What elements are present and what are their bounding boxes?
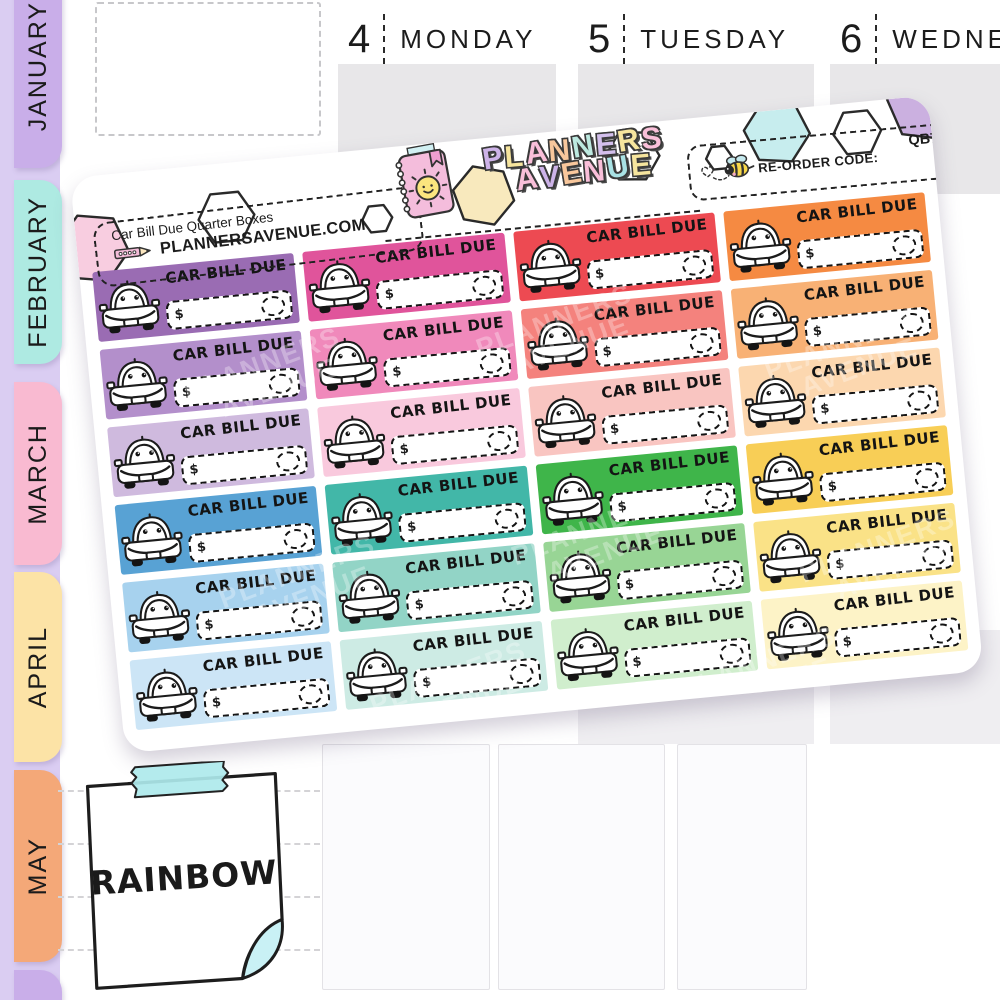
dollar-sign: $ xyxy=(189,462,199,478)
car-icon xyxy=(314,331,381,395)
sticker-car-bill-due: CAR BILL DUE$ xyxy=(325,466,533,555)
sticker-car-bill-due: CAR BILL DUE$ xyxy=(520,290,728,379)
sticker-car-bill-due: CAR BILL DUE$ xyxy=(115,486,323,575)
day-number: 4 xyxy=(348,17,370,62)
dollar-sign: $ xyxy=(384,287,394,303)
day-name: TUESDAY xyxy=(640,24,789,55)
tab-label: JANUARY xyxy=(24,1,53,131)
amount-box: $ xyxy=(616,559,744,600)
dashed-circle xyxy=(261,295,287,317)
notes-dashed-box xyxy=(95,2,321,136)
dashed-circle xyxy=(891,234,917,256)
dashed-circle xyxy=(486,430,512,452)
sticker-title: CAR BILL DUE xyxy=(175,410,306,443)
car-icon xyxy=(539,466,606,530)
sticker-title: CAR BILL DUE xyxy=(596,370,727,403)
car-icon xyxy=(749,446,816,510)
pencil-icon xyxy=(113,244,154,262)
sticker-car-bill-due: CAR BILL DUE$ xyxy=(340,621,548,710)
car-icon xyxy=(764,602,831,666)
amount-box: $ xyxy=(796,229,924,270)
dashed-circle xyxy=(501,585,527,607)
dashed-circle xyxy=(704,487,730,509)
dollar-sign: $ xyxy=(196,540,206,556)
sticker-car-bill-due: CAR BILL DUE$ xyxy=(738,347,946,436)
amount-box: $ xyxy=(188,522,316,563)
sticker-title: CAR BILL DUE xyxy=(603,448,734,481)
sticker-car-bill-due: CAR BILL DUE$ xyxy=(745,425,953,514)
amount-box: $ xyxy=(405,580,533,621)
dollar-sign: $ xyxy=(827,479,837,495)
day-section-box xyxy=(498,744,665,990)
logo-letter: U xyxy=(603,149,632,186)
sticker-car-bill-due: CAR BILL DUE$ xyxy=(310,310,518,399)
dollar-sign: $ xyxy=(392,364,402,380)
dashed-circle xyxy=(681,254,707,276)
dollar-sign: $ xyxy=(174,307,184,323)
sticker-title: CAR BILL DUE xyxy=(618,603,749,636)
car-icon xyxy=(516,234,583,298)
sticker-title: CAR BILL DUE xyxy=(197,643,328,676)
dashed-circle xyxy=(921,545,947,567)
amount-box: $ xyxy=(173,367,301,408)
sticker-car-bill-due: CAR BILL DUE$ xyxy=(543,523,751,612)
sidebar-tab-march: MARCH xyxy=(14,382,62,565)
car-icon xyxy=(126,585,193,649)
car-icon xyxy=(727,213,794,277)
dashed-circle xyxy=(268,373,294,395)
dollar-sign: $ xyxy=(407,519,417,535)
sticker-car-bill-due: CAR BILL DUE$ xyxy=(317,388,525,477)
sticker-car-bill-due: CAR BILL DUE$ xyxy=(332,543,540,632)
car-icon xyxy=(742,369,809,433)
dashed-circle xyxy=(508,663,534,685)
bee-icon xyxy=(699,152,760,189)
dashed-circle xyxy=(906,390,932,412)
dollar-sign: $ xyxy=(414,597,424,613)
dashed-circle xyxy=(298,683,324,705)
sticker-title: CAR BILL DUE xyxy=(190,566,321,599)
day-number: 5 xyxy=(588,17,610,62)
car-icon xyxy=(734,291,801,355)
dashed-circle xyxy=(929,622,955,644)
sidebar-tab-february: FEBRUARY xyxy=(14,180,62,364)
dollar-sign: $ xyxy=(624,577,634,593)
dollar-sign: $ xyxy=(594,266,604,282)
car-icon xyxy=(336,564,403,628)
sidebar-tab-january: JANUARY xyxy=(14,0,62,168)
sticker-title: CAR BILL DUE xyxy=(385,390,516,423)
sticker-car-bill-due: CAR BILL DUE$ xyxy=(535,445,743,534)
day-section-box xyxy=(677,744,807,990)
amount-box: $ xyxy=(811,384,939,425)
amount-box: $ xyxy=(826,539,954,580)
car-icon xyxy=(118,507,185,571)
amount-box: $ xyxy=(601,404,729,445)
sticker-car-bill-due: CAR BILL DUE$ xyxy=(100,331,308,420)
sticker-car-bill-due: CAR BILL DUE$ xyxy=(760,580,968,669)
sticker-title: CAR BILL DUE xyxy=(168,333,299,366)
tab-label: MARCH xyxy=(24,423,53,525)
dollar-sign: $ xyxy=(609,422,619,438)
sticker-title: CAR BILL DUE xyxy=(821,505,952,538)
logo-letter: E xyxy=(628,148,653,184)
dashed-circle xyxy=(718,643,744,665)
dashed-circle xyxy=(290,606,316,628)
amount-box: $ xyxy=(413,657,541,698)
dollar-sign: $ xyxy=(805,246,815,262)
day-section-box xyxy=(322,744,490,990)
sticker-title: CAR BILL DUE xyxy=(798,272,929,305)
dollar-sign: $ xyxy=(835,557,845,573)
dashed-circle xyxy=(493,508,519,530)
car-icon xyxy=(329,487,396,551)
rainbow-note: RAINBOW xyxy=(81,759,287,999)
car-icon xyxy=(111,429,178,493)
sticker-car-bill-due: CAR BILL DUE$ xyxy=(730,270,938,359)
amount-box: $ xyxy=(833,617,961,658)
day-number: 6 xyxy=(840,17,862,62)
amount-box: $ xyxy=(819,462,947,503)
dashed-circle xyxy=(283,528,309,550)
sticker-title: CAR BILL DUE xyxy=(611,525,742,558)
dashed-circle xyxy=(471,275,497,297)
washi-tape xyxy=(131,761,229,798)
sticker-title: CAR BILL DUE xyxy=(400,545,531,578)
dashed-circle xyxy=(711,565,737,587)
car-icon xyxy=(757,524,824,588)
sticker-car-bill-due: CAR BILL DUE$ xyxy=(550,601,758,690)
car-icon xyxy=(554,622,621,686)
tab-label: APRIL xyxy=(24,626,53,708)
sticker-car-bill-due: CAR BILL DUE$ xyxy=(107,408,315,497)
sticker-title: CAR BILL DUE xyxy=(806,350,937,383)
sticker-title: CAR BILL DUE xyxy=(183,488,314,521)
day-divider xyxy=(875,14,877,64)
car-icon xyxy=(321,409,388,473)
day-divider xyxy=(623,14,625,64)
amount-box: $ xyxy=(376,269,504,310)
sidebar-tab-may: MAY xyxy=(14,770,62,962)
sticker-sheet: Car Bill Due Quarter Boxes PLANNERSAVENU… xyxy=(70,95,983,753)
amount-box: $ xyxy=(165,289,293,330)
reorder-label: RE-ORDER CODE: xyxy=(757,149,878,175)
car-icon xyxy=(103,352,170,416)
sticker-title: CAR BILL DUE xyxy=(588,292,719,325)
sticker-title: CAR BILL DUE xyxy=(393,468,524,501)
dollar-sign: $ xyxy=(617,499,627,515)
dollar-sign: $ xyxy=(842,634,852,650)
amount-box: $ xyxy=(195,600,323,641)
dollar-sign: $ xyxy=(422,675,432,691)
dashed-circle xyxy=(696,410,722,432)
day-name: WEDNE xyxy=(892,24,1000,55)
dashed-circle xyxy=(689,332,715,354)
tab-label: MAY xyxy=(24,837,53,895)
amount-box: $ xyxy=(623,637,751,678)
sticker-title: CAR BILL DUE xyxy=(408,623,539,656)
amount-box: $ xyxy=(203,678,331,719)
car-icon xyxy=(344,642,411,706)
sticker-car-bill-due: CAR BILL DUE$ xyxy=(753,503,961,592)
sticker-car-bill-due: CAR BILL DUE$ xyxy=(528,368,736,457)
amount-box: $ xyxy=(398,502,526,543)
dashed-circle xyxy=(478,352,504,374)
dollar-sign: $ xyxy=(602,344,612,360)
dollar-sign: $ xyxy=(820,401,830,417)
car-icon xyxy=(546,544,613,608)
sticker-title: CAR BILL DUE xyxy=(378,313,509,346)
day-divider xyxy=(383,14,385,64)
dollar-sign: $ xyxy=(812,324,822,340)
sticker-car-bill-due: CAR BILL DUE$ xyxy=(122,563,330,652)
dollar-sign: $ xyxy=(632,654,642,670)
dollar-sign: $ xyxy=(211,695,221,711)
sticker-title: CAR BILL DUE xyxy=(828,583,959,616)
amount-box: $ xyxy=(608,482,736,523)
car-icon xyxy=(306,254,373,318)
amount-box: $ xyxy=(390,424,518,465)
tab-label: FEBRUARY xyxy=(24,196,53,348)
day-name: MONDAY xyxy=(400,24,536,55)
amount-box: $ xyxy=(593,326,721,367)
amount-box: $ xyxy=(804,306,932,347)
amount-box: $ xyxy=(180,445,308,486)
sticker-car-bill-due: CAR BILL DUE$ xyxy=(130,641,338,730)
dashed-circle xyxy=(914,467,940,489)
sticker-title: CAR BILL DUE xyxy=(813,427,944,460)
dashed-circle xyxy=(899,312,925,334)
amount-box: $ xyxy=(586,249,714,290)
car-icon xyxy=(531,389,598,453)
car-icon xyxy=(133,662,200,726)
dollar-sign: $ xyxy=(399,442,409,458)
planner-product-mockup: JANUARY FEBRUARY MARCH APRIL MAY 4 MONDA… xyxy=(0,0,1000,1000)
dashed-circle xyxy=(276,450,302,472)
amount-box: $ xyxy=(383,347,511,388)
car-icon xyxy=(524,311,591,375)
dollar-sign: $ xyxy=(181,384,191,400)
notebook-sun-icon xyxy=(388,139,465,227)
sidebar-tab-april: APRIL xyxy=(14,572,62,762)
dollar-sign: $ xyxy=(204,617,214,633)
